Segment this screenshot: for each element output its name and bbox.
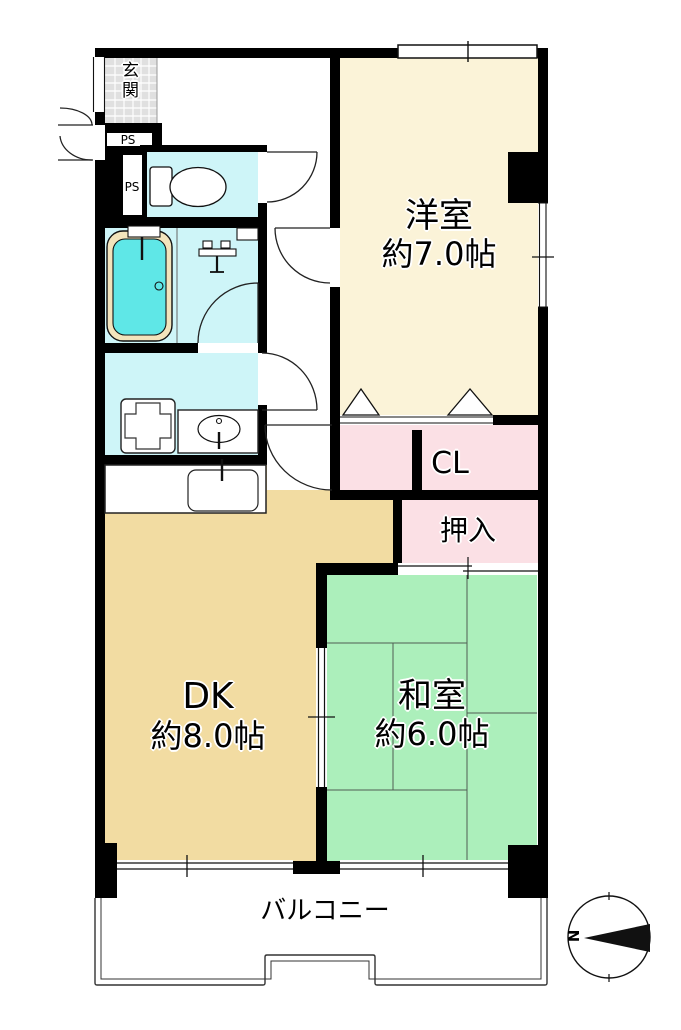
entrance-door-arc-top bbox=[60, 108, 92, 125]
closet-label: CL bbox=[410, 446, 490, 481]
kitchen-counter bbox=[105, 459, 266, 513]
dk-floor bbox=[105, 465, 267, 862]
entrance-label: 玄関 bbox=[118, 61, 138, 101]
japanese-room-name: 和室 bbox=[327, 676, 537, 716]
dk-floor-extension bbox=[327, 500, 393, 573]
washroom-door bbox=[262, 353, 317, 410]
western-room-label: 洋室 約7.0帖 bbox=[340, 196, 538, 274]
dk-name: DK bbox=[103, 676, 313, 718]
western-room-name: 洋室 bbox=[340, 196, 538, 236]
bathtub bbox=[107, 226, 172, 341]
bath-shelf bbox=[237, 228, 258, 240]
balcony-label: バルコニー bbox=[200, 896, 450, 927]
japanese-room-label: 和室 約6.0帖 bbox=[327, 676, 537, 754]
floorplan: 玄関 PS PS 洋室 約7.0帖 CL 押入 DK 約8.0帖 和室 約6.0… bbox=[0, 0, 681, 1030]
entrance-door-leaf bbox=[58, 125, 93, 160]
washbasin bbox=[178, 410, 258, 453]
oshiire-label: 押入 bbox=[398, 514, 538, 547]
dk-label: DK 約8.0帖 bbox=[103, 676, 313, 756]
toilet-door bbox=[267, 152, 317, 202]
western-room-door bbox=[275, 228, 330, 283]
dk-size: 約8.0帖 bbox=[103, 718, 313, 756]
compass-north-label: N bbox=[563, 926, 581, 946]
pipe-space-lower-label: PS bbox=[120, 180, 144, 194]
japanese-room-size: 約6.0帖 bbox=[327, 716, 537, 754]
dk-door bbox=[265, 425, 332, 490]
pipe-space-upper-label: PS bbox=[103, 133, 153, 147]
washing-machine-pan bbox=[121, 399, 175, 453]
western-room-size: 約7.0帖 bbox=[340, 236, 538, 274]
floorplan-canvas bbox=[0, 0, 681, 1030]
toilet-fixture bbox=[150, 167, 226, 207]
entrance-door-arc-bottom bbox=[60, 136, 92, 160]
